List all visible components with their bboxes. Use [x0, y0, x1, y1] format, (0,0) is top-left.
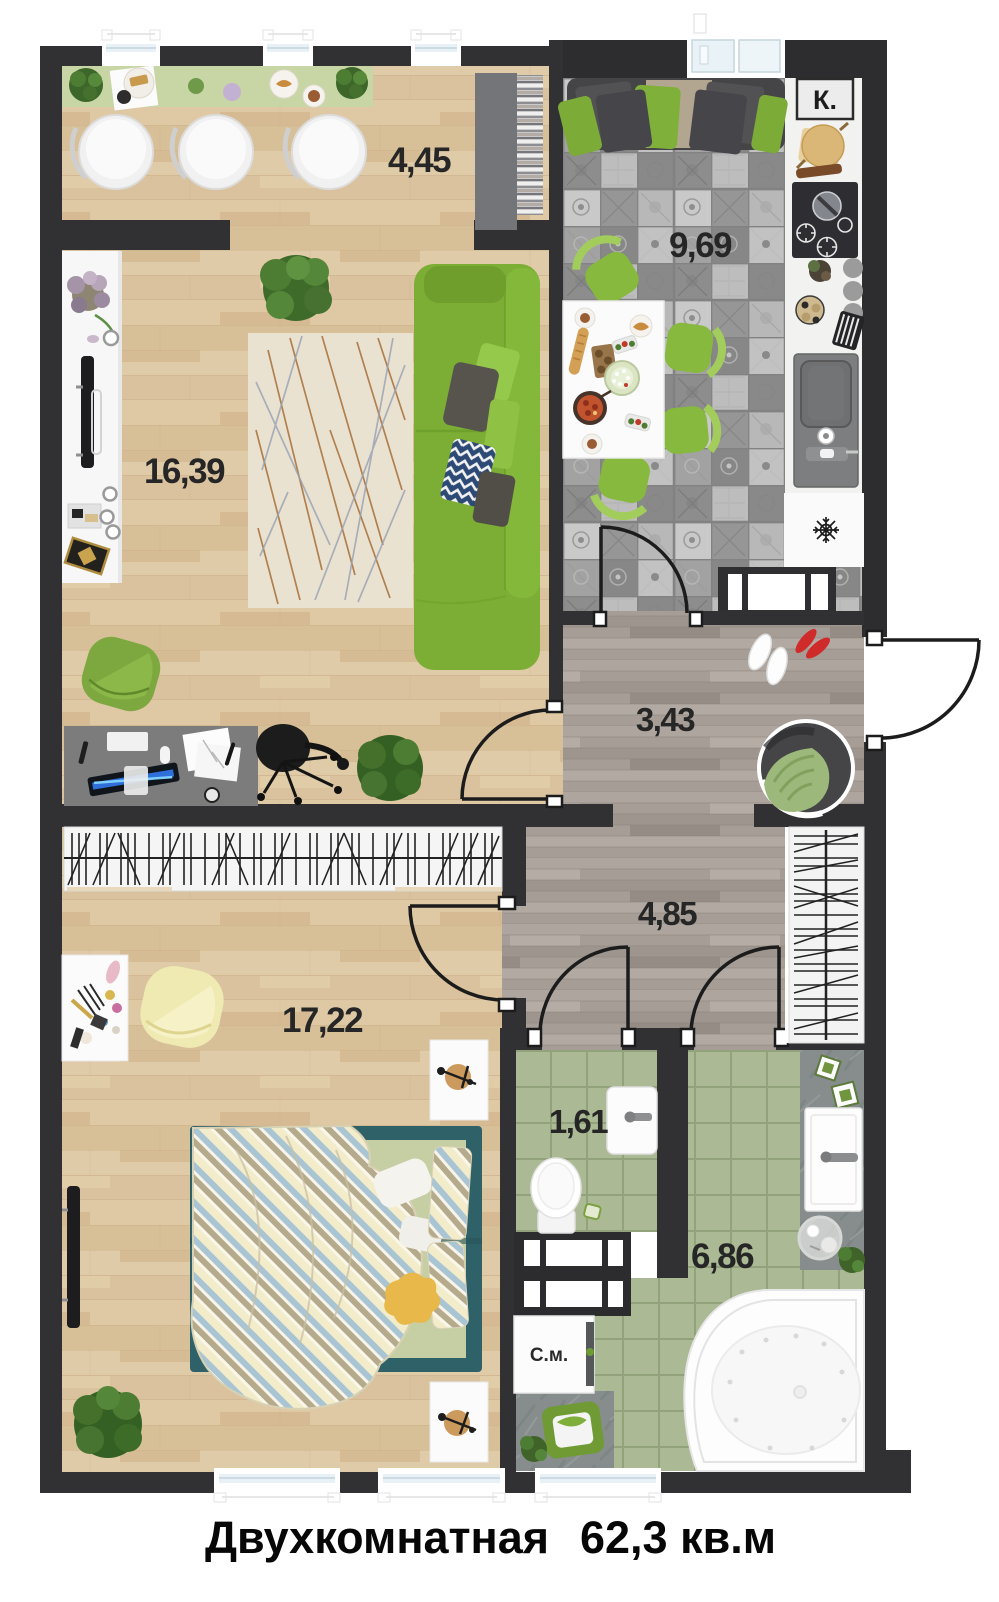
svg-text:4,85: 4,85: [638, 895, 697, 932]
svg-text:62,3 кв.м: 62,3 кв.м: [580, 1512, 776, 1563]
svg-text:4,45: 4,45: [388, 141, 451, 180]
svg-text:1,61: 1,61: [549, 1103, 608, 1140]
svg-text:Двухкомнатная: Двухкомнатная: [205, 1512, 549, 1563]
svg-text:3,43: 3,43: [636, 701, 695, 738]
svg-text:6,86: 6,86: [691, 1237, 754, 1276]
svg-text:С.м.: С.м.: [530, 1345, 568, 1366]
svg-text:К.: К.: [813, 85, 837, 115]
svg-text:17,22: 17,22: [282, 1001, 363, 1040]
svg-text:16,39: 16,39: [144, 452, 225, 491]
svg-text:9,69: 9,69: [669, 226, 732, 265]
